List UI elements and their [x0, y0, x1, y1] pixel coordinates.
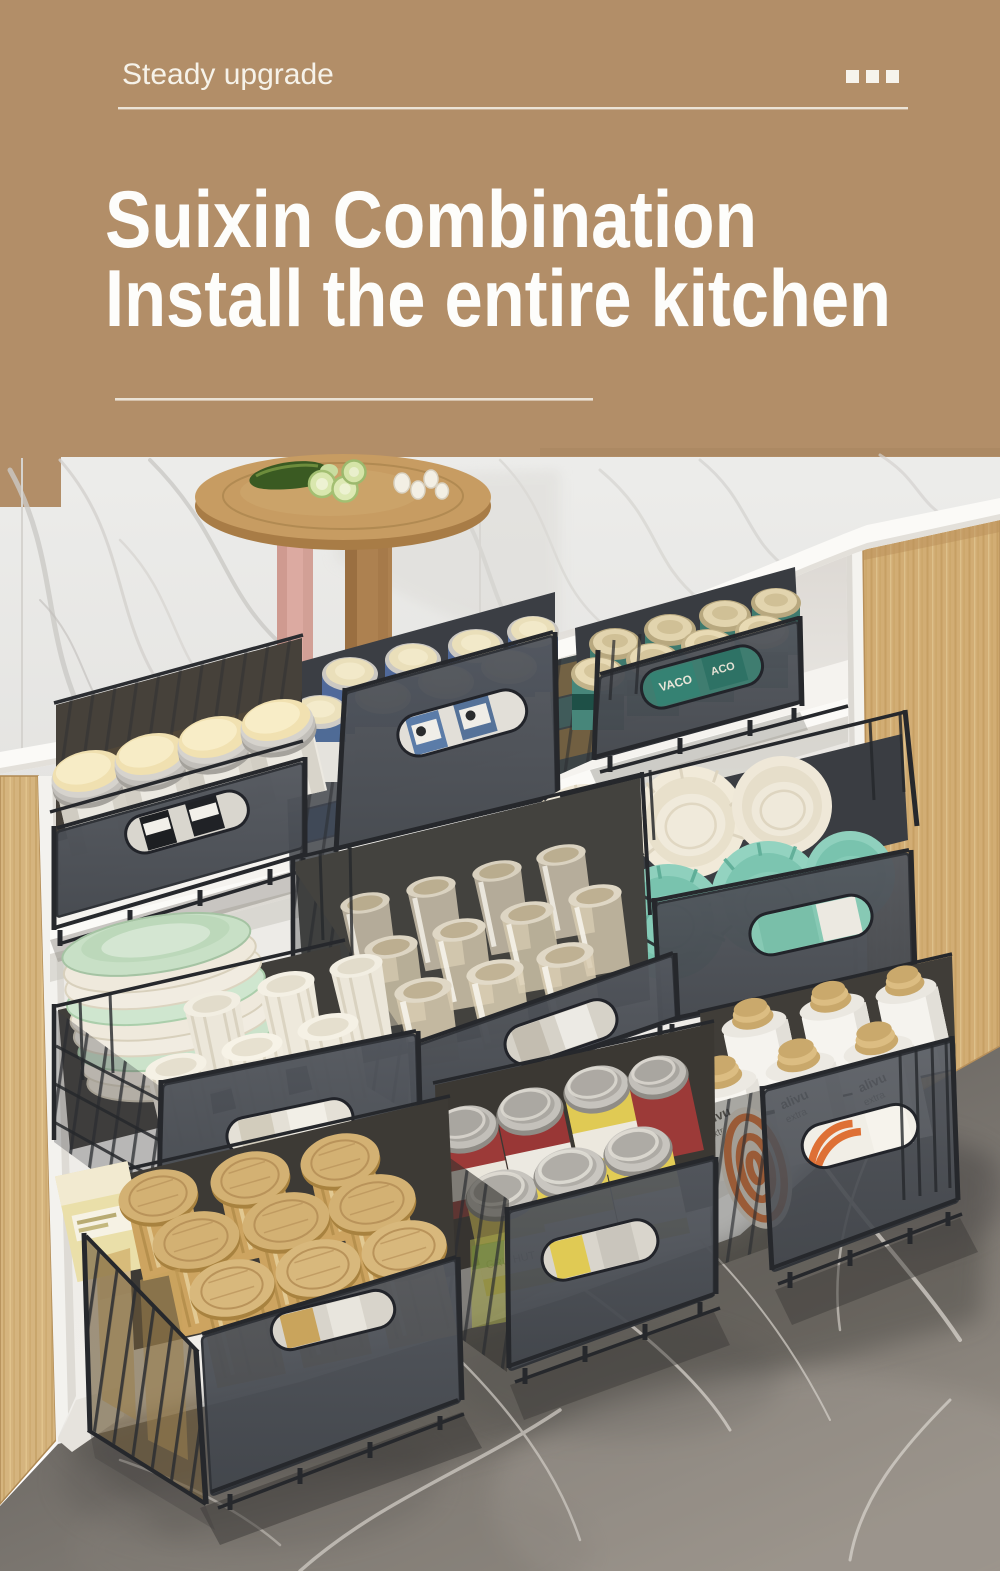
svg-text:Install the entire kitchen: Install the entire kitchen [105, 254, 891, 344]
svg-text:Suixin Combination: Suixin Combination [105, 175, 757, 265]
svg-text:Steady upgrade: Steady upgrade [122, 58, 334, 91]
